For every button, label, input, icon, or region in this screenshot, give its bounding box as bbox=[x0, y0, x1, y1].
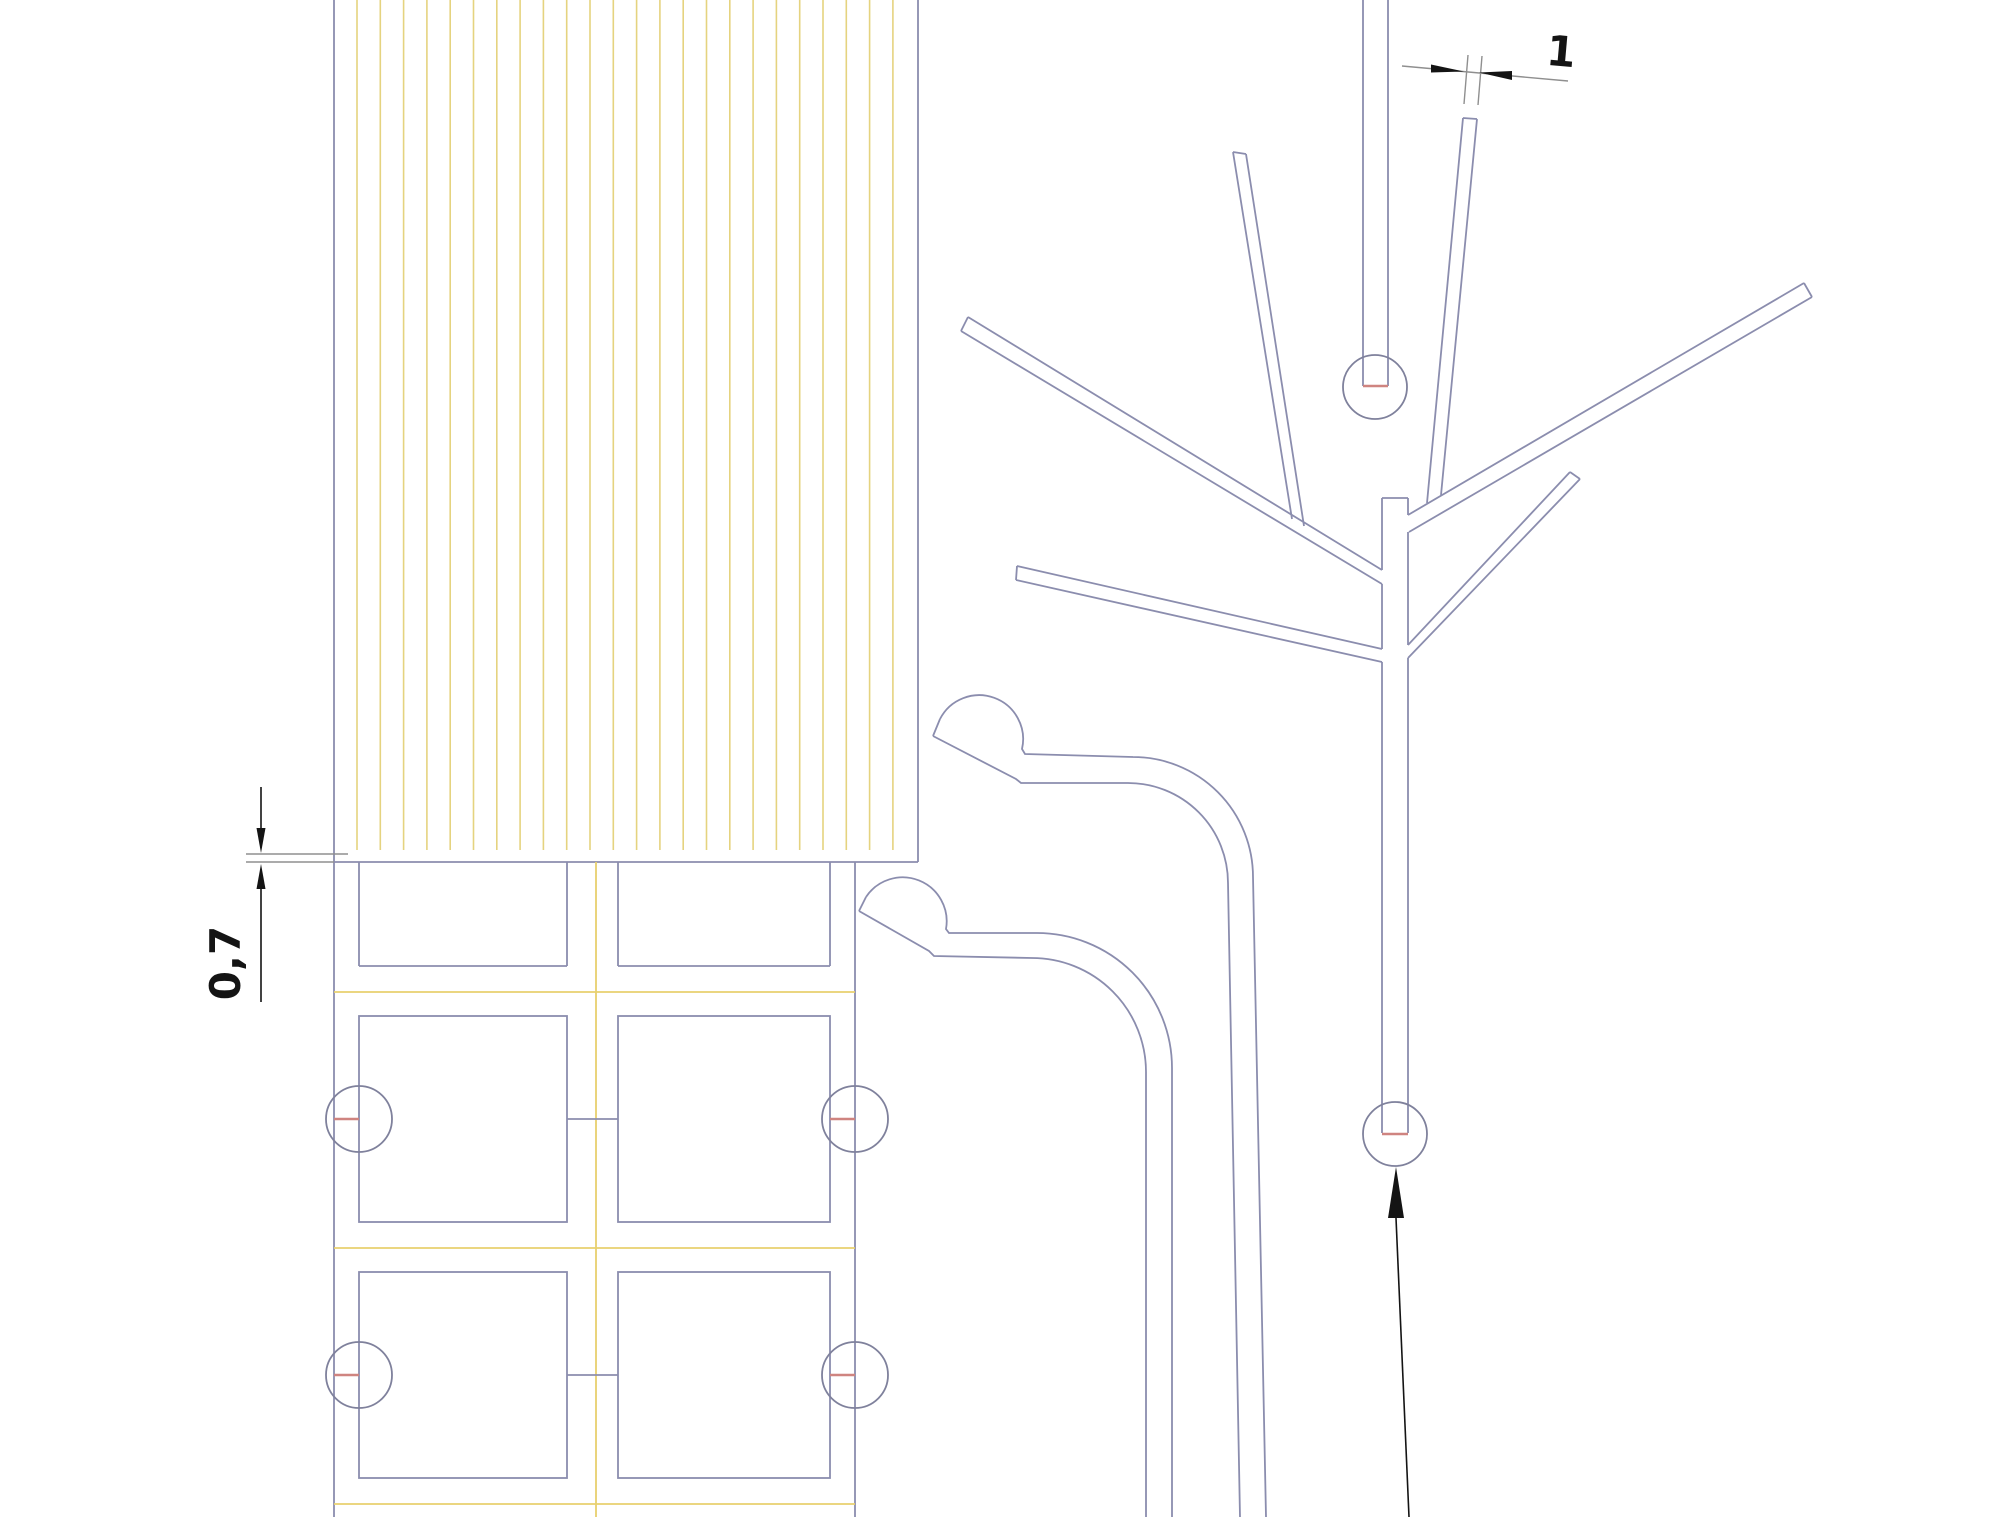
hook-lower-outer-edge bbox=[866, 877, 1172, 1517]
dimension-overlap: 0,7 bbox=[201, 787, 348, 1002]
cad-drawing-stage: 1 0,7 bbox=[0, 0, 2000, 1517]
hatch-lines bbox=[357, 0, 893, 850]
dimension-channel-width: 1 bbox=[1402, 26, 1578, 105]
dim1-arrow-right bbox=[1479, 71, 1512, 80]
hook-channel-upper bbox=[933, 695, 1266, 1517]
branch-dimensioned bbox=[1427, 118, 1477, 503]
leader-line bbox=[1396, 1218, 1409, 1517]
leader-arrowhead bbox=[1388, 1167, 1404, 1218]
leader-arrow bbox=[1388, 1167, 1409, 1517]
dim1-extension-line-b bbox=[1478, 56, 1482, 105]
dim1-value: 1 bbox=[1545, 26, 1578, 77]
branch-left-long bbox=[961, 317, 1382, 584]
channel-tree bbox=[961, 0, 1812, 1166]
hook-channel-lower bbox=[859, 877, 1172, 1517]
generated-line bbox=[618, 1016, 830, 1222]
hatched-pad bbox=[334, 0, 918, 862]
dim07-arrow-up bbox=[257, 864, 266, 889]
generated-line bbox=[618, 1272, 830, 1478]
row-separators bbox=[334, 992, 855, 1504]
branch-left-steep bbox=[1233, 152, 1304, 526]
hook-upper-inner-edge bbox=[933, 736, 1240, 1517]
hook-upper-cap bbox=[933, 719, 940, 736]
dim1-extension-line-a bbox=[1464, 55, 1468, 104]
dim07-arrow-down bbox=[257, 828, 266, 853]
hook-lower-cap bbox=[859, 897, 866, 911]
electrode-rows bbox=[326, 862, 888, 1478]
electrode-grid bbox=[326, 862, 888, 1517]
generated-line bbox=[359, 1016, 567, 1222]
dim1-arrow-left bbox=[1431, 65, 1464, 73]
cad-canvas: 1 0,7 bbox=[0, 0, 2000, 1517]
branch-left-lower bbox=[1016, 566, 1382, 662]
hook-upper-outer-edge bbox=[940, 695, 1266, 1517]
generated-line bbox=[359, 1272, 567, 1478]
dim07-value: 0,7 bbox=[201, 926, 250, 1000]
branch-right-long bbox=[1408, 283, 1812, 532]
hook-lower-inner-edge bbox=[859, 911, 1146, 1517]
